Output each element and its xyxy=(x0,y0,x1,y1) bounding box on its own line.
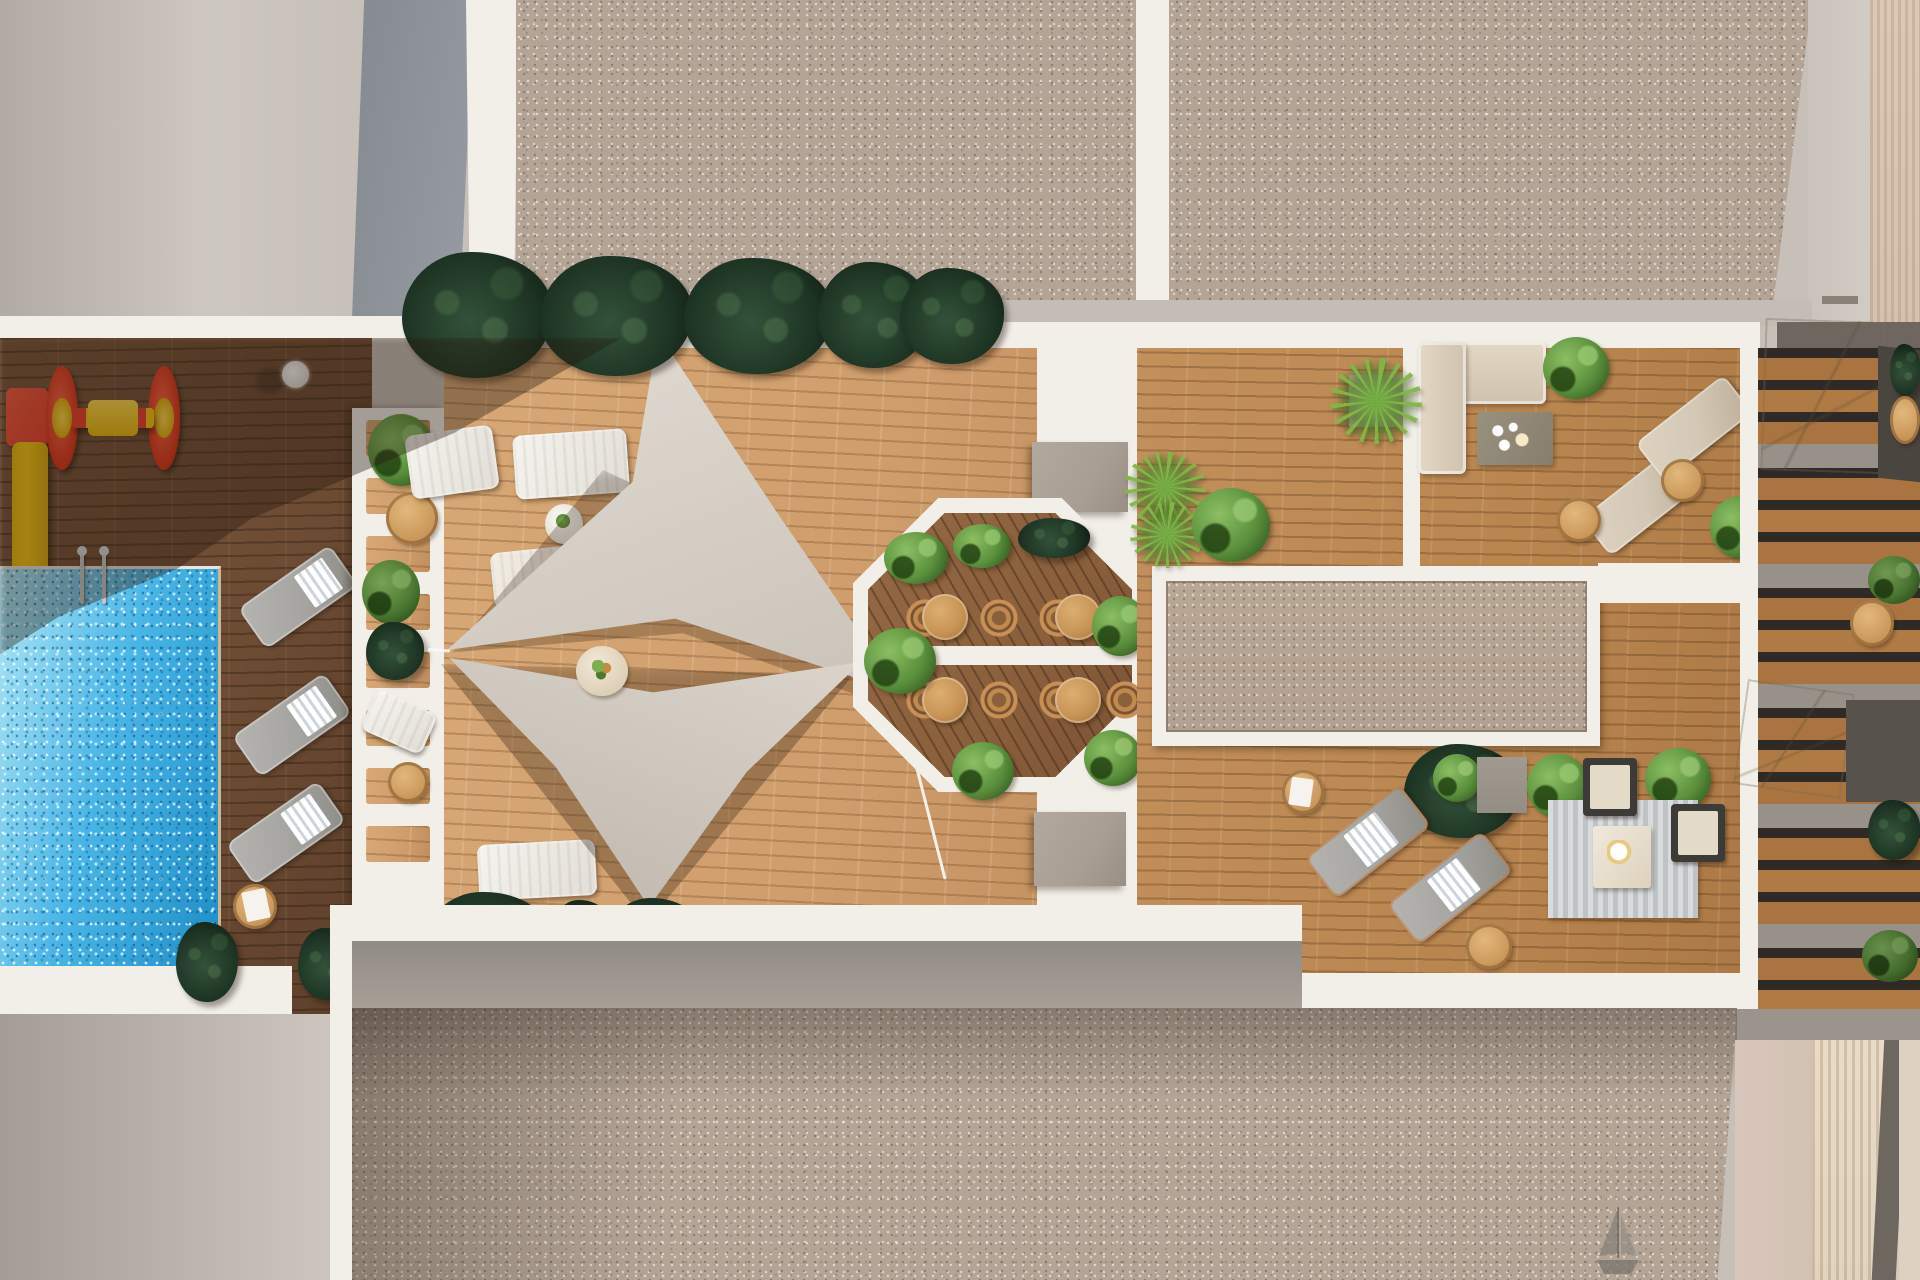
yucca-plant-1 xyxy=(1330,358,1422,444)
terrace-table-1 xyxy=(1890,396,1920,444)
pool-ladder-knob-right xyxy=(99,546,109,556)
parapet-right-vertical xyxy=(1740,345,1758,1008)
playground-slide-top xyxy=(6,388,48,446)
upper-lounge-bush-1 xyxy=(1543,337,1609,399)
bottom-left-white-divider xyxy=(330,940,352,1280)
right-deck-bush-round xyxy=(1192,488,1270,562)
terrace-plant-2 xyxy=(1868,556,1920,604)
top-white-divider-center xyxy=(1136,0,1169,302)
lower-side-table xyxy=(1466,924,1512,969)
playground-spinner-drum xyxy=(88,400,138,436)
parapet-bottom-right xyxy=(1282,973,1758,1009)
terrace-canopy-2 xyxy=(1733,679,1855,799)
pool-ladder-knob-left xyxy=(77,546,87,556)
rooftop-render xyxy=(0,0,1920,1280)
sailboat-motif xyxy=(1592,1206,1644,1280)
pool-plant-left xyxy=(176,922,238,1002)
octagon-shrub-5 xyxy=(952,742,1014,800)
top-right-tan-wall xyxy=(1870,0,1920,325)
deck-light-fixture-shadow xyxy=(256,368,284,394)
planter-block-bottom xyxy=(1034,812,1126,886)
octagon-dining-patio xyxy=(853,498,1147,792)
trellis-cell-8 xyxy=(366,826,430,862)
top-left-wall xyxy=(0,0,372,318)
bottom-right-light-edge xyxy=(1899,1040,1920,1280)
terrace-table-2 xyxy=(1850,600,1894,646)
trellis-round-table xyxy=(386,492,438,544)
armchair-top xyxy=(1583,758,1637,816)
rug-table-plate xyxy=(1607,840,1633,866)
terrace-plant-4 xyxy=(1862,930,1918,982)
coffee-table-plates xyxy=(1489,420,1533,456)
lower-bush-small xyxy=(1433,754,1481,802)
octagon-shrub-6 xyxy=(1084,730,1142,786)
top-plant-3 xyxy=(684,258,832,374)
top-plant-1 xyxy=(402,252,552,378)
pool-ladder-rail-left xyxy=(80,550,84,604)
top-right-gray-band xyxy=(1808,0,1874,325)
upper-side-table-2 xyxy=(1661,459,1704,502)
top-gravel-roof-right xyxy=(1169,0,1812,302)
sofa-seat-left xyxy=(1418,342,1466,474)
parapet-left xyxy=(0,316,466,338)
skylight-gravel xyxy=(1166,581,1587,732)
terrace-plant-3 xyxy=(1868,800,1920,860)
playground-spinner-hub-left xyxy=(52,398,72,438)
pool-surround-bottom xyxy=(0,966,292,1016)
playground-spinner-hub-right xyxy=(154,398,174,438)
trellis-plant-mid xyxy=(362,560,420,624)
armchair-bottom xyxy=(1671,804,1725,862)
terrace-canopy-2-shadow xyxy=(1846,700,1920,802)
swimming-pool xyxy=(0,566,221,971)
bistro-table-3 xyxy=(922,677,968,723)
pool-ladder-rail-right xyxy=(102,550,106,604)
bottom-left-wall xyxy=(0,1014,352,1280)
bistro-table-1 xyxy=(922,594,968,640)
deck-light-fixture xyxy=(282,361,309,388)
skylight-side-platform xyxy=(1598,563,1758,603)
bottom-wall-face xyxy=(330,941,1302,1013)
upper-side-table-1 xyxy=(1557,498,1601,542)
lower-gray-mat xyxy=(1477,757,1527,813)
trellis-plant-dark xyxy=(366,622,424,680)
parapet-bottom-left xyxy=(330,905,1302,941)
octagon-shrub-2 xyxy=(953,524,1011,568)
trellis-table-low xyxy=(388,762,428,802)
top-right-dark-dash xyxy=(1822,296,1858,304)
deck-lounger-1 xyxy=(404,424,500,500)
bistro-chair-6 xyxy=(979,680,1019,720)
top-plant-2 xyxy=(540,256,692,376)
octagon-shrub-dark xyxy=(1018,518,1090,558)
octagon-shrub-3 xyxy=(864,628,936,694)
octagon-shrub-1 xyxy=(884,532,948,584)
bistro-table-4 xyxy=(1055,677,1101,723)
lower-table-card xyxy=(1288,777,1314,808)
top-plant-5 xyxy=(900,268,1004,364)
sail-shell-table-decor xyxy=(592,660,612,680)
terrace-plant-1 xyxy=(1890,344,1920,396)
bottom-gravel-left-shadow xyxy=(345,1008,775,1280)
terrace-canopy-1 xyxy=(1760,318,1885,474)
bistro-chair-2 xyxy=(979,598,1019,638)
